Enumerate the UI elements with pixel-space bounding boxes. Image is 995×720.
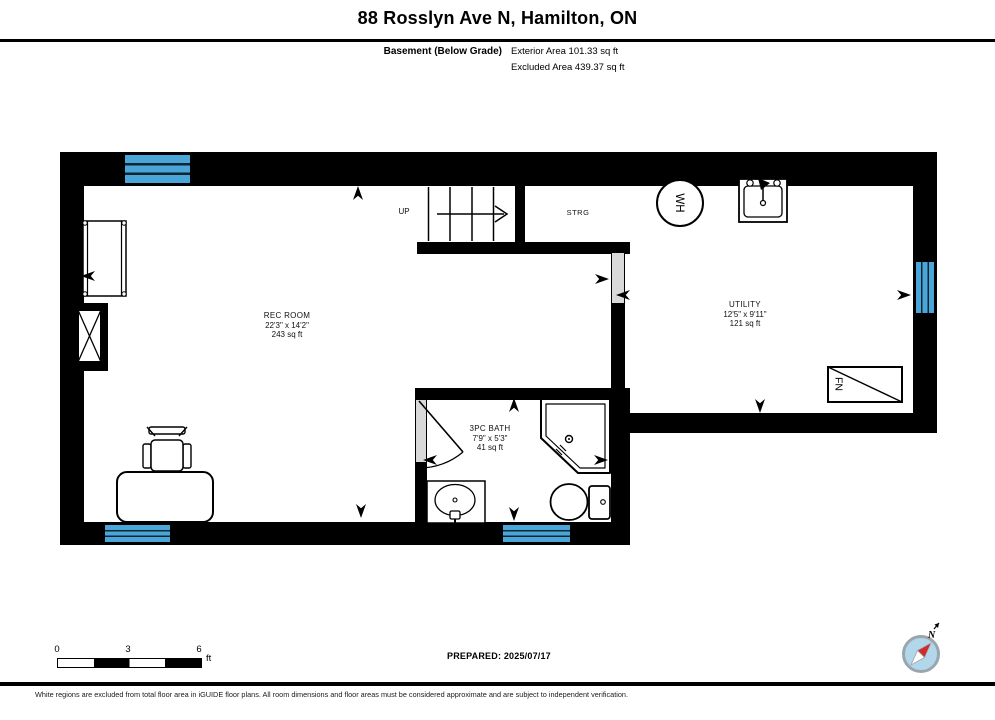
wall-bath-right [611,388,630,522]
stairs [429,187,508,241]
chimney-block [60,303,108,371]
desk [117,472,213,522]
room-name: UTILITY [670,300,820,310]
room-name: REC ROOM [212,311,362,321]
opening-arrow-icon [509,398,519,412]
opening-arrow-icon [509,507,519,521]
window-bottom-left [105,525,170,542]
footer-divider [0,682,995,686]
vanity-sink [427,481,485,526]
scale-tick: 0 [50,644,64,655]
wall-stair-right [515,186,525,242]
chair [143,427,191,471]
stairs-up-label: UP [392,207,416,216]
shelving-unit [83,221,126,296]
floor-label: Basement (Below Grade) [280,46,502,57]
opening-arrow-icon [755,399,765,413]
opening-arrow-icon [356,504,366,518]
wall-utility-bottom [611,413,937,433]
window-utility-right [916,262,934,313]
svg-text:WH: WH [673,193,685,212]
svg-text:N: N [927,630,936,641]
page-title: 88 Rosslyn Ave N, Hamilton, ON [0,8,995,29]
exterior-area: Exterior Area 101.33 sq ft [511,46,618,57]
room-area: 41 sq ft [415,443,565,453]
floorplan-page: 88 Rosslyn Ave N, Hamilton, ON Basement … [0,0,995,720]
opening-arrow-icon [897,290,911,300]
room-dimensions: 12'5" x 9'11" [670,310,820,320]
water-heater: WH [657,180,703,226]
furnace: FN [828,367,902,402]
compass-icon: N [904,623,940,672]
wall-bath-top [415,388,625,400]
disclaimer-text: White regions are excluded from total fl… [35,690,965,699]
scale-tick: 6 [192,644,206,655]
opening-arrow-icon [595,274,609,284]
room-area: 121 sq ft [670,319,820,329]
excluded-area: Excluded Area 439.37 sq ft [511,62,625,73]
wall-under-stairs [417,242,630,254]
scale-bar [57,658,202,668]
room-label-rec-room: REC ROOM 22'3" x 14'2" 243 sq ft [212,311,362,340]
window-top-left [125,155,190,183]
storage-label: STRG [553,208,603,217]
room-label-bath: 3PC BATH 7'9" x 5'3" 41 sq ft [415,424,565,453]
room-name: 3PC BATH [415,424,565,434]
opening-arrow-icon [353,186,363,200]
fixtures-layer: WH FN N [0,0,995,720]
window-bath [503,525,570,542]
toilet [551,484,611,520]
wall-top [60,152,937,186]
room-dimensions: 22'3" x 14'2" [212,321,362,331]
header-divider [0,39,995,42]
scale-unit: ft [206,653,211,664]
svg-text:FN: FN [833,377,845,391]
room-label-utility: UTILITY 12'5" x 9'11" 121 sq ft [670,300,820,329]
opening-arrow-icon [594,455,608,465]
prepared-date: PREPARED: 2025/07/17 [447,651,551,661]
scale-tick: 3 [121,644,135,655]
room-dimensions: 7'9" x 5'3" [415,434,565,444]
room-area: 243 sq ft [212,330,362,340]
